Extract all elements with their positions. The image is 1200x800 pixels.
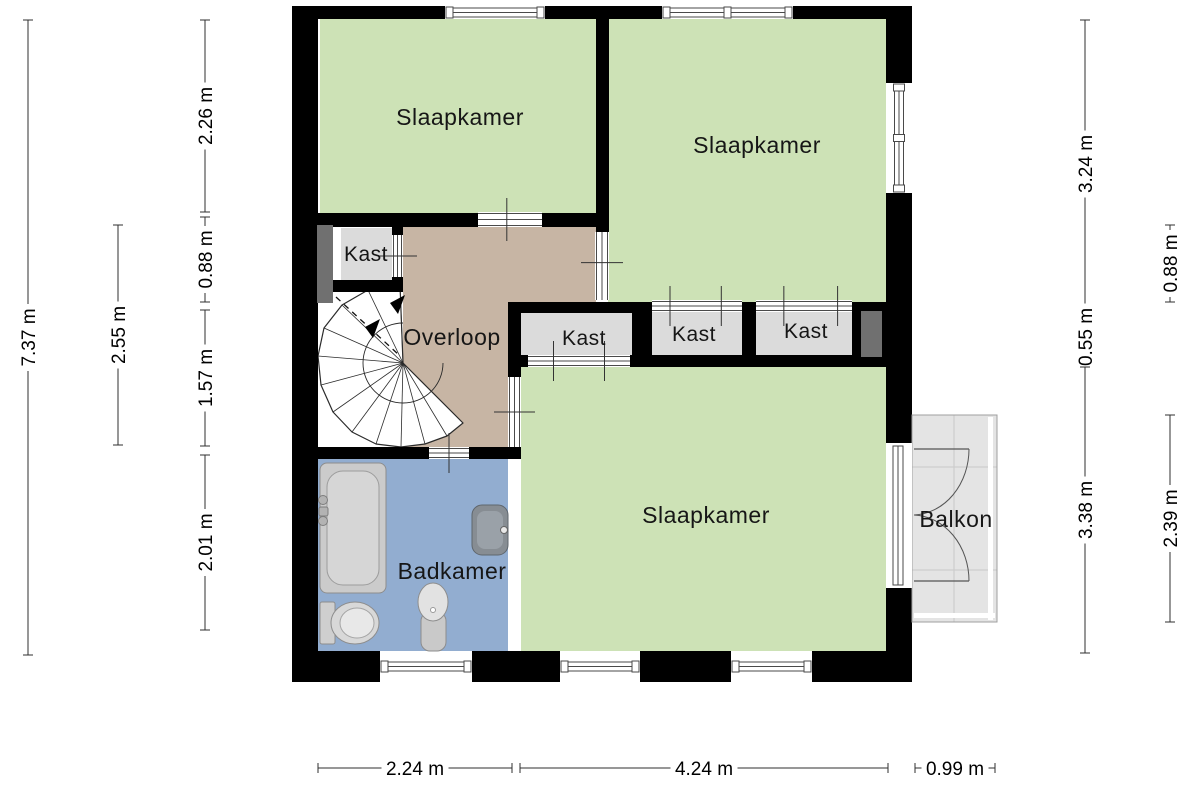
room-label-badkamer: Badkamer [398, 558, 507, 584]
dimension-label: 1.57 m [196, 349, 217, 407]
window-icon [445, 6, 545, 19]
dimension-label: 3.24 m [1076, 135, 1097, 193]
room-overloop-upper [403, 225, 596, 302]
dimension: 2.26 m [193, 20, 217, 212]
window-icon [731, 651, 812, 682]
room-label-balkon: Balkon [919, 506, 992, 532]
dimension: 0.99 m [915, 756, 995, 780]
floor-plan-drawing: SlaapkamerSlaapkamerSlaapkamerOverloopKa… [0, 0, 1200, 800]
room-slaapkamer-top-right [608, 19, 886, 302]
dimension: 0.88 m [1158, 225, 1182, 302]
dimension-label: 2.26 m [196, 87, 217, 145]
room-label-kast-2: Kast [672, 323, 716, 346]
dimension: 3.24 m [1073, 20, 1097, 308]
dimension: 2.55 m [106, 225, 130, 445]
dimension-label: 7.37 m [19, 308, 40, 366]
dimension-label: 0.99 m [926, 759, 984, 780]
wall-segment [292, 6, 318, 682]
window-icon [560, 651, 640, 682]
dimension: 4.24 m [520, 756, 888, 780]
dimension-label: 0.88 m [196, 230, 217, 288]
dimension-label: 4.24 m [675, 759, 733, 780]
window-icon [886, 83, 912, 193]
room-label-slaapkamer-top-left: Slaapkamer [396, 104, 524, 130]
shaft [861, 311, 882, 357]
wall-segment [292, 6, 912, 19]
dimension-label: 2.39 m [1161, 489, 1182, 547]
wall-segment [632, 302, 652, 367]
dimension: 2.39 m [1158, 415, 1182, 622]
room-label-slaapkamer-bottom: Slaapkamer [642, 502, 770, 528]
room-label-slaapkamer-top-right: Slaapkamer [693, 132, 821, 158]
window-icon [662, 6, 793, 19]
dimension-label: 3.38 m [1076, 481, 1097, 539]
room-label-overloop: Overloop [403, 324, 500, 350]
dimension: 7.37 m [16, 20, 40, 655]
dimension-label: 2.01 m [196, 513, 217, 571]
wall-segment [318, 213, 596, 227]
dimension-label: 2.24 m [386, 759, 444, 780]
shaft [317, 225, 333, 303]
dimension-label: 0.55 m [1076, 308, 1097, 366]
bathtub [319, 463, 387, 593]
window-icon [380, 651, 472, 682]
wall-segment [742, 302, 756, 367]
wall-segment [318, 447, 521, 459]
dimension: 1.57 m [193, 310, 217, 446]
room-label-kast-3: Kast [784, 320, 828, 343]
dimension: 2.01 m [193, 455, 217, 630]
pedestal-sink [418, 583, 448, 651]
room-label-kast-1: Kast [562, 327, 606, 350]
floor-plan-page: SlaapkamerSlaapkamerSlaapkamerOverloopKa… [0, 0, 1200, 800]
dimension: 2.24 m [318, 756, 512, 780]
dimension: 0.88 m [193, 217, 217, 302]
toilet [320, 602, 379, 644]
dimension: 3.38 m [1073, 367, 1097, 653]
wall-basin [472, 505, 508, 555]
room-label-kast-links: Kast [344, 243, 388, 266]
dimension: 0.55 m [1073, 304, 1097, 371]
wall-segment [508, 302, 637, 313]
dimension-label: 2.55 m [109, 306, 130, 364]
wall-segment [596, 19, 609, 232]
dimension-label: 0.88 m [1161, 234, 1182, 292]
